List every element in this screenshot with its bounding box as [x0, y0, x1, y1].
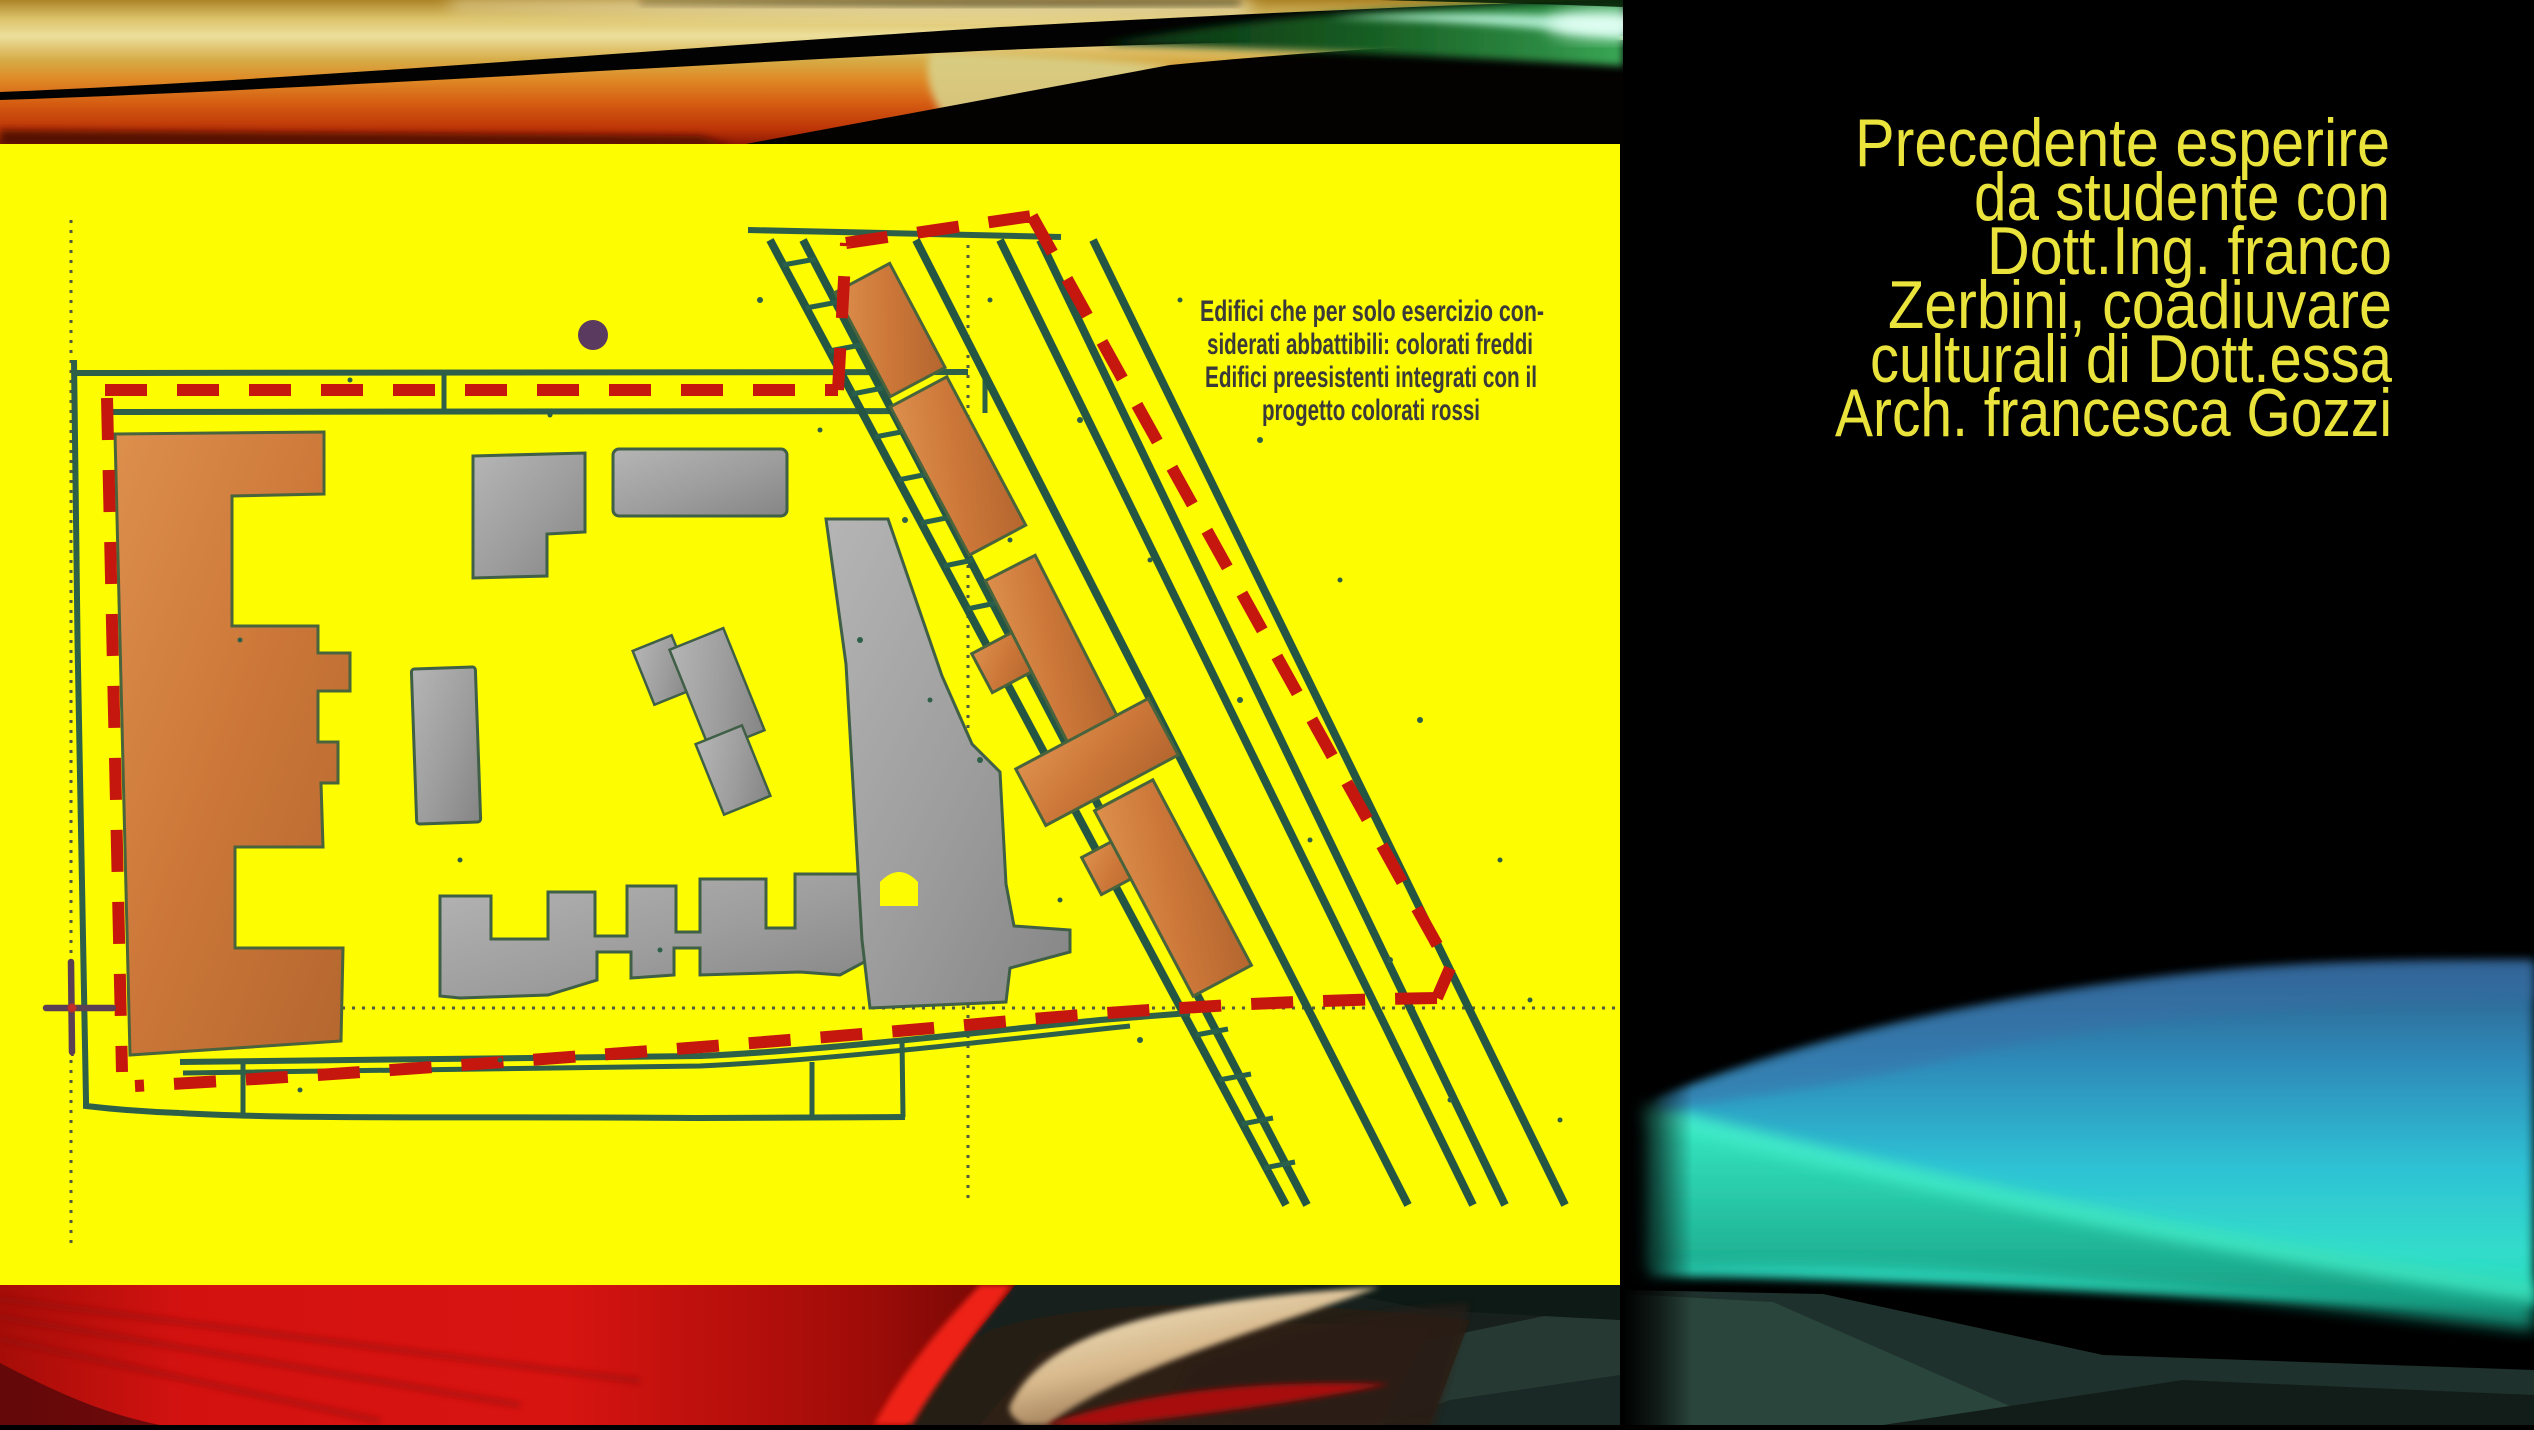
svg-text:siderati abbattibili: colorati: siderati abbattibili: colorati freddi — [1207, 328, 1533, 361]
svg-text:Edifici preesistenti integrati: Edifici preesistenti integrati con il — [1205, 361, 1537, 394]
svg-text:progetto colorati rossi: progetto colorati rossi — [1262, 394, 1480, 427]
svg-text:Arch. francesca Gozzi: Arch. francesca Gozzi — [1835, 375, 2392, 451]
svg-text:Edifici che per solo esercizio: Edifici che per solo esercizio con- — [1200, 295, 1544, 328]
